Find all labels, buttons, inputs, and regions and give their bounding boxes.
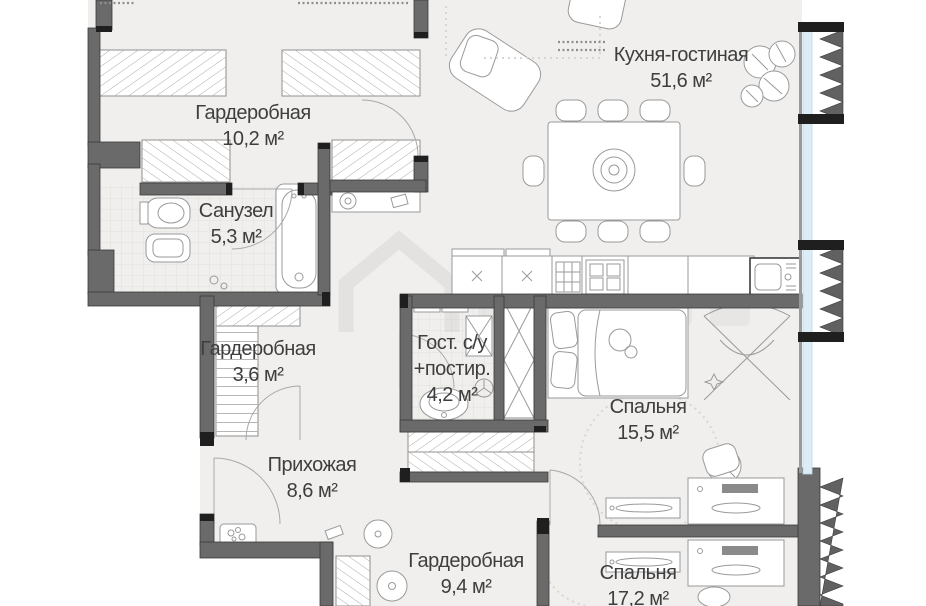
floor-plan: Кухня-гостиная 51,6 м² Гардеробная 10,2 … — [0, 0, 926, 606]
room-label-wardrobe-2: Гардеробная 3,6 м² — [200, 336, 316, 388]
room-label-bedroom-2: Спальня 17,2 м² — [600, 560, 677, 606]
room-name: Кухня-гостиная — [614, 42, 749, 68]
room-name: Гардеробная — [200, 336, 316, 362]
dining-table — [548, 122, 680, 220]
built-in-closet — [504, 302, 534, 418]
room-name: Санузел — [199, 198, 273, 224]
room-label-hallway: Прихожая 8,6 м² — [268, 452, 357, 504]
bathtub-icon — [276, 184, 322, 294]
room-area: 3,6 м² — [200, 362, 316, 388]
toilet-icon — [140, 198, 190, 228]
room-area: 9,4 м² — [408, 574, 524, 600]
room-label-guest-wc: Гост. с/у +постир. 4,2 м² — [414, 330, 491, 408]
room-name: Гардеробная — [408, 548, 524, 574]
room-name: Прихожая — [268, 452, 357, 478]
bathroom-sink-icon — [146, 234, 190, 262]
room-name: Спальня — [610, 394, 687, 420]
room-area: 10,2 м² — [195, 126, 311, 152]
room-area: 8,6 м² — [268, 478, 357, 504]
room-name: Гост. с/у — [414, 330, 491, 356]
room-name: Спальня — [600, 560, 677, 586]
bed-icon — [548, 308, 688, 398]
room-area: 15,5 м² — [610, 420, 687, 446]
console-1 — [606, 498, 680, 518]
room-label-kitchen-living: Кухня-гостиная 51,6 м² — [614, 42, 749, 94]
room-label-bedroom-1: Спальня 15,5 м² — [610, 394, 687, 446]
room-area: 4,2 м² — [414, 382, 491, 408]
console-shelf — [332, 190, 420, 212]
floor-plan-drawing — [0, 0, 926, 606]
kitchen-sink-icon — [750, 258, 800, 298]
room-label-bathroom: Санузел 5,3 м² — [199, 198, 273, 250]
room-area: 17,2 м² — [600, 586, 677, 606]
room-label-wardrobe-1: Гардеробная 10,2 м² — [195, 100, 311, 152]
room-name: Гардеробная — [195, 100, 311, 126]
room-label-wardrobe-3: Гардеробная 9,4 м² — [408, 548, 524, 600]
room-area: 5,3 м² — [199, 224, 273, 250]
room-name-2: +постир. — [414, 356, 491, 382]
room-area: 51,6 м² — [614, 68, 749, 94]
